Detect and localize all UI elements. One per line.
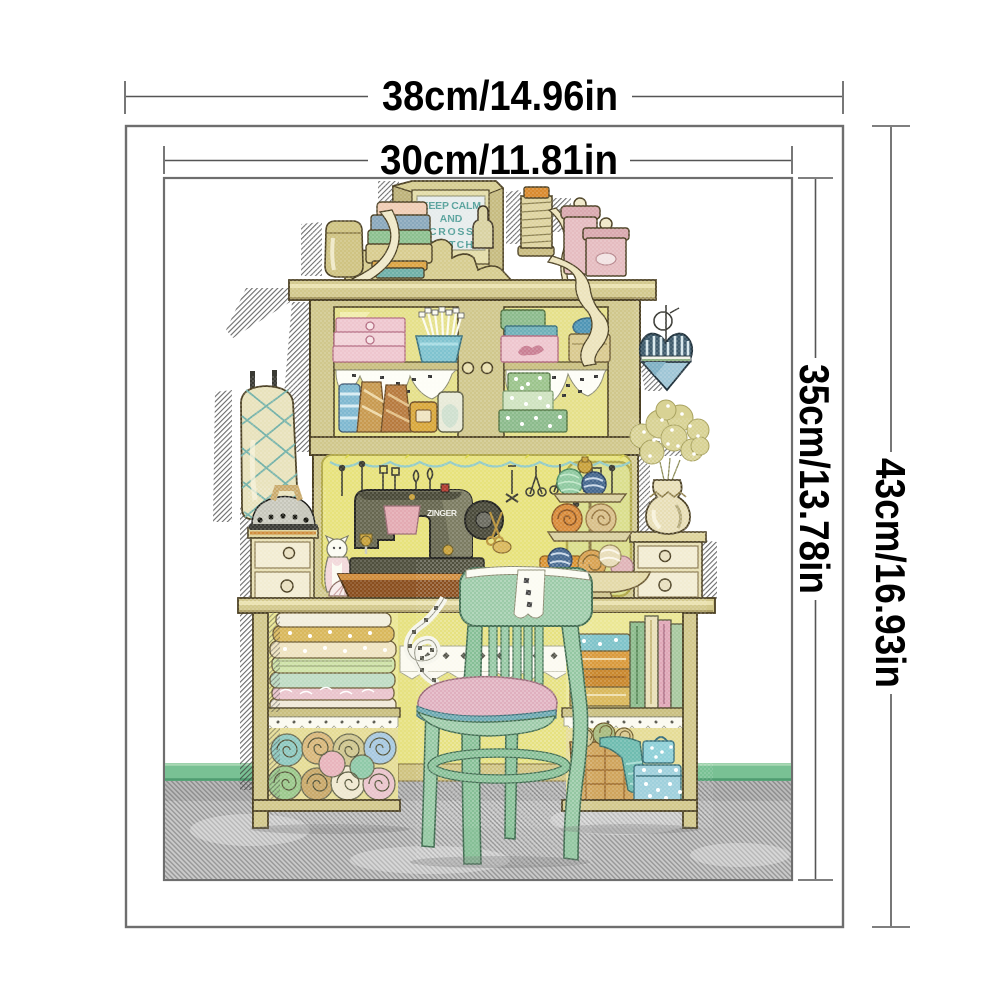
svg-text:38cm/14.96in: 38cm/14.96in — [382, 72, 618, 119]
svg-text:35cm/13.78in: 35cm/13.78in — [791, 364, 838, 594]
svg-text:30cm/11.81in: 30cm/11.81in — [380, 136, 618, 183]
svg-text:43cm/16.93in: 43cm/16.93in — [867, 458, 914, 688]
